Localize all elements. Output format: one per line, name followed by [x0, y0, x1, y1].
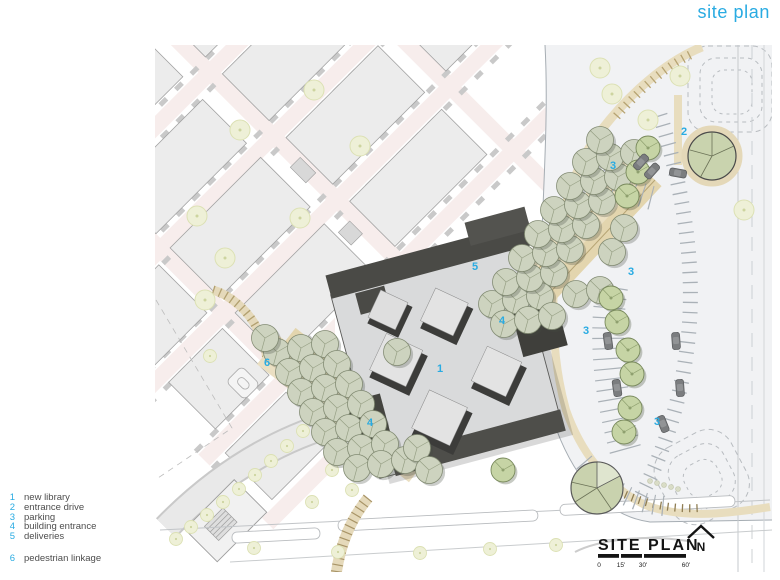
specimen-tree-south — [571, 462, 623, 514]
marker-parking-2: 3 — [628, 266, 634, 278]
legend-label: pedestrian linkage — [24, 553, 101, 564]
scale-tick-60: 60' — [682, 562, 690, 569]
marker-parking-3: 3 — [583, 325, 589, 337]
legend-label: deliveries — [24, 531, 64, 542]
marker-parking-4: 3 — [654, 416, 660, 428]
titleblock-name: SITE PLAN — [598, 537, 700, 554]
site-plan-sheet: site plan — [0, 0, 780, 580]
site-plan-drawing: 1 2 3 3 3 3 4 4 5 6 SITE PLAN 0 15' — [0, 0, 780, 580]
legend-item-pedestrian-linkage: 6pedestrian linkage — [4, 554, 101, 564]
specimen-tree-north — [688, 132, 736, 180]
marker-parking-1: 3 — [610, 160, 616, 172]
scale-tick-15: 15' — [617, 562, 625, 569]
marker-building-entrance-2: 4 — [367, 417, 374, 429]
marker-deliveries: 5 — [472, 261, 478, 273]
titleblock: SITE PLAN 0 15' 30' 60' N — [575, 526, 714, 569]
scale-bar — [598, 554, 686, 558]
legend-number: 6 — [4, 554, 15, 564]
legend-number: 5 — [4, 532, 15, 542]
legend: 1new library 2entrance drive 3parking 4b… — [4, 493, 101, 564]
legend-item-deliveries: 5deliveries — [4, 532, 101, 542]
north-label: N — [697, 540, 706, 554]
scale-tick-30: 30' — [639, 562, 647, 569]
marker-entrance-drive: 2 — [681, 126, 687, 138]
marker-building-entrance-1: 4 — [499, 315, 506, 327]
marker-pedestrian-linkage: 6 — [264, 357, 270, 369]
scale-tick-0: 0 — [597, 562, 601, 569]
marker-new-library: 1 — [437, 363, 443, 375]
